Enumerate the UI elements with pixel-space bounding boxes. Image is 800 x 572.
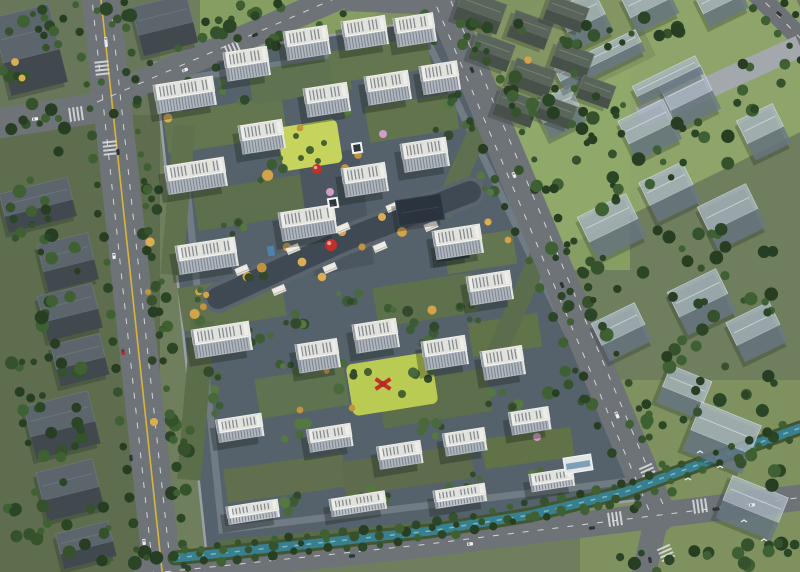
vehicle bbox=[112, 253, 116, 259]
vehicle bbox=[129, 455, 133, 461]
apartment-tower bbox=[412, 61, 462, 104]
vehicle bbox=[116, 149, 120, 155]
apartment-tower bbox=[473, 345, 527, 388]
apartment-tower bbox=[288, 338, 342, 381]
apartment-tower bbox=[386, 13, 438, 56]
red-sphere-sculpture bbox=[325, 239, 337, 251]
entrance-gate bbox=[328, 198, 338, 208]
vehicle bbox=[121, 349, 125, 355]
entrance-gate bbox=[352, 143, 362, 153]
vehicle bbox=[349, 554, 355, 558]
red-sphere-sculpture bbox=[312, 164, 322, 174]
scene-svg bbox=[0, 0, 800, 572]
masterplan-render bbox=[0, 0, 800, 572]
vehicle bbox=[142, 539, 146, 545]
